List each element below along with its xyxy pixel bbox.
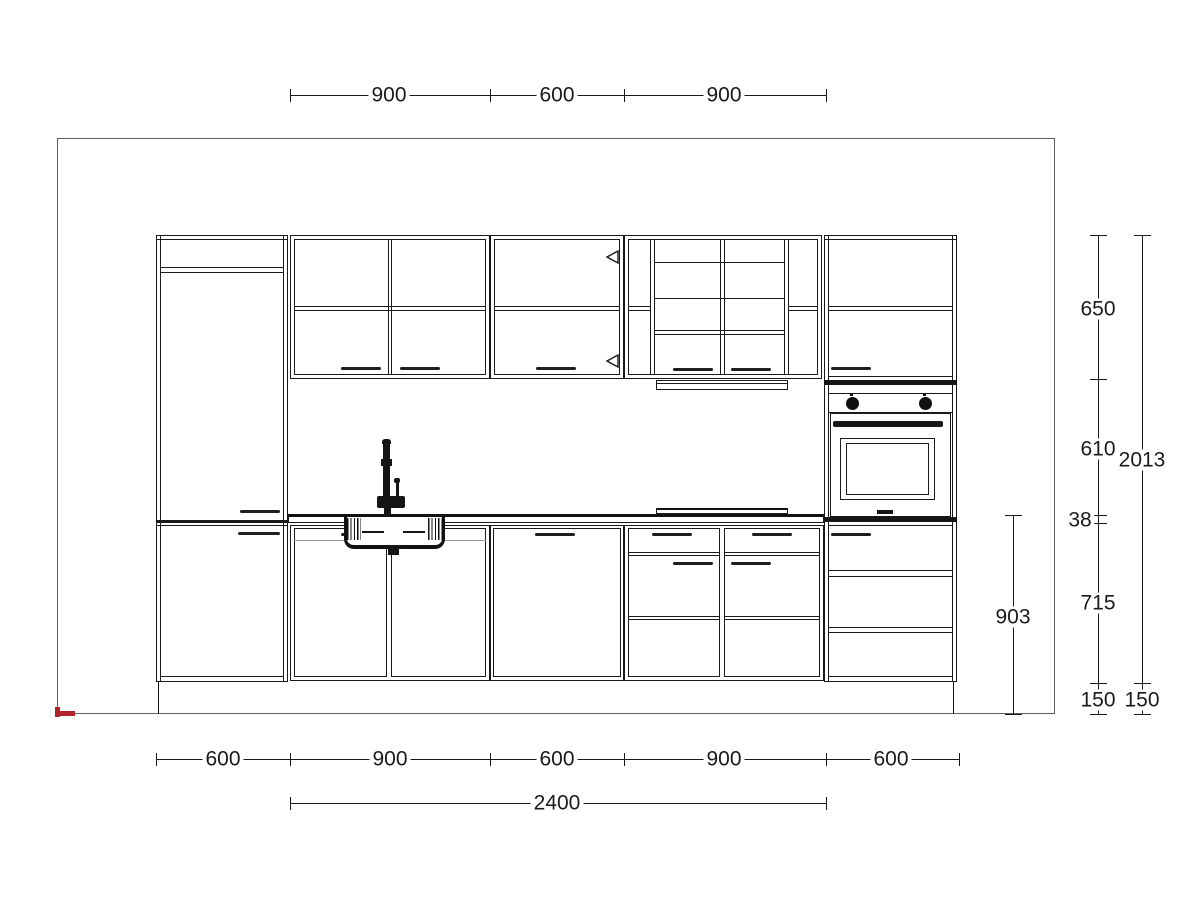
dim-label-bottom-2400: 2400 (531, 793, 584, 814)
dim-label-top-900-left: 900 (368, 85, 409, 106)
dim-label-bottom-900-1: 900 (369, 749, 410, 770)
dim-label-right-2013: 2013 (1116, 450, 1169, 471)
dim-label-right-715: 715 (1077, 593, 1118, 614)
dim-label-right-38: 38 (1065, 510, 1094, 531)
dim-label-right-650: 650 (1077, 299, 1118, 320)
dim-label-right-610: 610 (1077, 439, 1118, 460)
dimension-labels-layer: 9006009006009006009006002400650610201338… (0, 0, 1200, 900)
dim-label-top-600-center: 600 (536, 85, 577, 106)
kitchen-elevation-drawing: 9006009006009006009006002400650610201338… (0, 0, 1200, 900)
dim-label-top-900-right: 900 (703, 85, 744, 106)
dim-label-right-150-outer: 150 (1121, 690, 1162, 711)
dim-label-bottom-900-2: 900 (703, 749, 744, 770)
dim-label-bottom-600-2: 600 (536, 749, 577, 770)
dim-label-right-903: 903 (992, 607, 1033, 628)
dim-label-bottom-600-3: 600 (870, 749, 911, 770)
dim-label-bottom-600-1: 600 (202, 749, 243, 770)
dim-label-right-150-inner: 150 (1077, 690, 1118, 711)
